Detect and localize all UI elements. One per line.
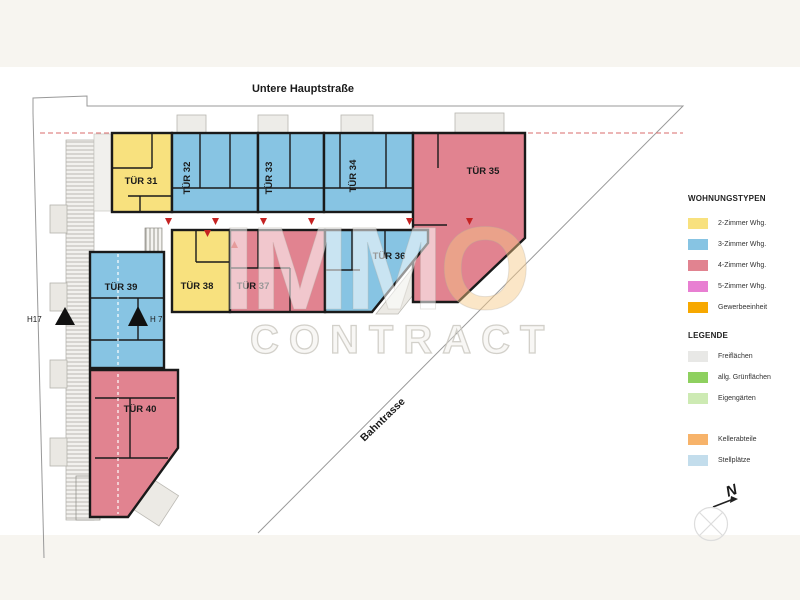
legend-wohnungstypen-title: WOHNUNGSTYPEN bbox=[688, 194, 798, 203]
unit-tuer-34 bbox=[324, 133, 413, 212]
legend-item-gewerbe: Gewerbeeinheit bbox=[688, 301, 798, 313]
unit-tuer-39 bbox=[90, 252, 164, 368]
unit-label-tuer-35: TÜR 35 bbox=[467, 166, 500, 177]
bottom-margin-strip bbox=[0, 535, 800, 600]
swatch-gruenflaechen bbox=[688, 372, 708, 383]
unit-label-tuer-37: TÜR 37 bbox=[237, 281, 270, 292]
balcony bbox=[258, 115, 288, 133]
unit-label-tuer-38: TÜR 38 bbox=[181, 281, 214, 292]
unit-label-tuer-36: TÜR 36 bbox=[373, 251, 406, 262]
balcony bbox=[455, 113, 504, 133]
h7-label: H 7 bbox=[150, 315, 163, 324]
unit-tuer-38 bbox=[172, 230, 230, 312]
unit-label-tuer-39: TÜR 39 bbox=[105, 282, 138, 293]
swatch-kellerabteile bbox=[688, 434, 708, 445]
h17-label: H17 bbox=[27, 315, 42, 324]
legend-item-5zimmer: 5-Zimmer Whg. bbox=[688, 280, 798, 292]
unit-label-tuer-32: TÜR 32 bbox=[182, 162, 193, 195]
open-space-strip bbox=[94, 134, 111, 211]
legend-item-2zimmer: 2-Zimmer Whg. bbox=[688, 217, 798, 229]
swatch-2zimmer bbox=[688, 218, 708, 229]
swatch-stellplaetze bbox=[688, 455, 708, 466]
left-annex-box bbox=[50, 205, 67, 233]
left-annex-box bbox=[50, 360, 67, 388]
balcony bbox=[341, 115, 373, 133]
legend-item-eigengaerten: Eigengärten bbox=[688, 392, 798, 404]
legend-item-3zimmer: 3-Zimmer Whg. bbox=[688, 238, 798, 250]
swatch-3zimmer bbox=[688, 239, 708, 250]
legend-item-stellplaetze: Stellplätze bbox=[688, 454, 798, 466]
swatch-freiflaechen bbox=[688, 351, 708, 362]
left-annex-box bbox=[50, 283, 67, 311]
legend-item-kellerabteile: Kellerabteile bbox=[688, 433, 798, 445]
street-label: Untere Hauptstraße bbox=[252, 83, 354, 95]
unit-label-tuer-33: TÜR 33 bbox=[264, 162, 275, 195]
top-margin-strip bbox=[0, 0, 800, 67]
legend-wohnungstypen: WOHNUNGSTYPEN 2-Zimmer Whg. 3-Zimmer Whg… bbox=[688, 194, 798, 322]
floor-plan-page: H17 H 7 TÜR 31 TÜR 32 TÜR 33 TÜR 34 TÜR … bbox=[0, 0, 800, 600]
swatch-gewerbe bbox=[688, 302, 708, 313]
unit-label-tuer-31: TÜR 31 bbox=[125, 176, 158, 187]
unit-tuer-31 bbox=[112, 133, 172, 212]
left-annex-box bbox=[50, 438, 67, 466]
legend-item-freiflaechen: Freiflächen bbox=[688, 350, 798, 362]
legend-general: LEGENDE Freiflächen allg. Grünflächen Ei… bbox=[688, 331, 798, 475]
legend-gap bbox=[688, 413, 798, 433]
unit-label-tuer-40: TÜR 40 bbox=[124, 404, 157, 415]
balcony bbox=[177, 115, 206, 133]
swatch-4zimmer bbox=[688, 260, 708, 271]
floor-plan-svg: H17 H 7 TÜR 31 TÜR 32 TÜR 33 TÜR 34 TÜR … bbox=[0, 0, 800, 600]
legend-item-4zimmer: 4-Zimmer Whg. bbox=[688, 259, 798, 271]
legend-item-gruenflaechen: allg. Grünflächen bbox=[688, 371, 798, 383]
swatch-5zimmer bbox=[688, 281, 708, 292]
unit-label-tuer-34: TÜR 34 bbox=[348, 159, 359, 192]
unit-tuer-37 bbox=[230, 230, 325, 312]
legend-general-title: LEGENDE bbox=[688, 331, 798, 340]
swatch-eigengaerten bbox=[688, 393, 708, 404]
